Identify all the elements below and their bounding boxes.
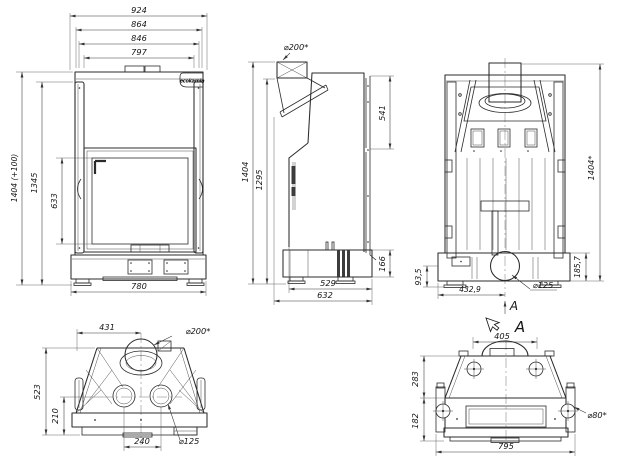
dim-top-flue-dia: ⌀200* — [186, 326, 211, 336]
dim-back-height-small: 93,5 — [414, 268, 423, 285]
dim-upper-height: 283 — [410, 371, 420, 387]
section-view: A 405 283 182 795 ⌀80* — [410, 318, 607, 456]
back-view: 1404* 185,7 93,5 432,9 ⌀125 A — [414, 58, 604, 314]
fireplace-drawing: ecokamin — [0, 0, 624, 460]
front-view-part: ecokamin — [71, 66, 206, 286]
vent-left — [128, 260, 152, 274]
right-handle — [199, 179, 203, 199]
dim-flue-dia: ⌀200* — [284, 42, 309, 52]
dim-glass-height: 633 — [49, 193, 59, 209]
dim-total-width: 924 — [131, 5, 147, 15]
side-view-part — [277, 62, 376, 284]
back-ribs — [467, 158, 545, 250]
mounting-rail-left — [447, 82, 456, 258]
door-frame — [84, 148, 196, 252]
door-latch — [131, 245, 169, 252]
dim-intake-dia: ⌀125 — [179, 436, 200, 446]
side-view-dimensions: ⌀200* 541 1404 1295 166 529 632 — [240, 42, 394, 305]
dim-outlet-offset: 432,9 — [459, 285, 481, 294]
dim-section-width: 795 — [498, 441, 514, 451]
section-view-label: A — [514, 318, 525, 336]
door-handle-side — [292, 166, 296, 184]
dim-hole-dia: ⌀80* — [587, 410, 606, 420]
back-view-part — [438, 58, 570, 297]
dim-width-2: 864 — [131, 19, 147, 29]
dim-width-4: 797 — [131, 47, 147, 57]
dim-total-height: 1404 (+100) — [10, 154, 19, 203]
dim-lower-height: 182 — [410, 413, 420, 429]
door-glass — [92, 158, 188, 244]
dim-base-width: 780 — [131, 281, 147, 291]
dim-outlet-dia: ⌀125 — [533, 280, 554, 290]
vent-right — [164, 260, 188, 274]
dim-shield-height: 541 — [377, 105, 387, 121]
dim-flue-offset: 431 — [99, 322, 115, 332]
base — [71, 255, 206, 279]
bolt-hole — [526, 359, 546, 379]
base-side — [283, 250, 372, 277]
top-view-part — [72, 333, 207, 445]
mounting-rail-right — [554, 82, 563, 258]
dim-side-height-2: 1295 — [254, 170, 264, 191]
intake-left — [113, 385, 135, 407]
dim-base-height: 166 — [377, 256, 387, 272]
dim-width-3: 846 — [131, 33, 147, 43]
front-view: ecokamin — [10, 5, 207, 296]
dim-top-total-depth: 523 — [32, 384, 42, 400]
top-view: 431 ⌀200* 523 210 240 ⌀125 — [32, 322, 210, 451]
section-cut-label: A — [509, 299, 518, 313]
bolt-hole — [464, 359, 484, 379]
technical-drawing-sheet: ecokamin — [0, 0, 624, 460]
dim-base-depth: 529 — [320, 278, 336, 288]
dim-hump-width: 405 — [494, 331, 510, 341]
dim-side-total-height: 1404 — [240, 162, 250, 183]
mouse-cursor-icon — [486, 318, 499, 332]
dim-back-total-height: 1404* — [586, 156, 596, 181]
dim-top-depth-2: 210 — [50, 408, 60, 424]
dim-height-2: 1345 — [29, 173, 39, 194]
side-view: ⌀200* 541 1404 1295 166 529 632 — [240, 42, 394, 305]
dim-back-base-height: 185,7 — [573, 256, 582, 278]
intake-right — [150, 385, 172, 407]
dim-intake-spacing: 240 — [134, 436, 150, 446]
dim-total-depth: 632 — [317, 290, 333, 300]
